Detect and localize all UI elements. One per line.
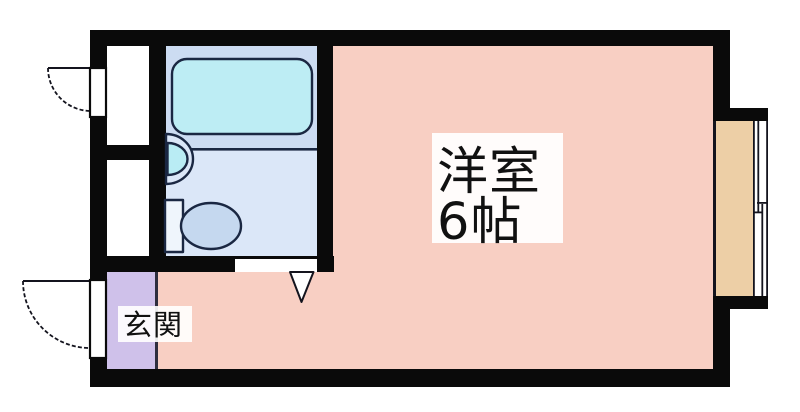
bathtub (172, 59, 312, 134)
entrance-label: 玄関 (123, 308, 183, 342)
floor-plan-drawing: 洋室 6帖 玄関 (0, 0, 800, 412)
floor-plan-canvas: 洋室 6帖 玄関 (0, 0, 800, 412)
window-frame-line-right (766, 121, 768, 296)
wall-alcove-divider (107, 145, 166, 160)
window-sash-tick-lower (753, 212, 763, 214)
wall-right-lower (713, 296, 730, 387)
window-sash-tick-upper (757, 202, 768, 204)
entrance-door-leaf (90, 280, 106, 358)
wall-inner-vertical (149, 30, 166, 256)
bay-window-floor (716, 121, 753, 296)
wall-bathroom-right (317, 30, 333, 272)
wall-bay-top-stub (713, 108, 768, 121)
window-sash-lower (761, 204, 763, 296)
main-room-label-size: 6帖 (437, 193, 522, 252)
left-alcove-lower-floor (107, 160, 149, 256)
toilet-bowl (181, 203, 241, 249)
upper-left-door-swing-arc (48, 68, 91, 111)
wall-bottom (90, 369, 730, 387)
opening-bathroom-door (235, 259, 317, 272)
wall-bay-bottom-stub (713, 296, 768, 309)
upper-left-door-leaf (90, 68, 106, 117)
bay-window-inner-edge-line (713, 121, 716, 296)
entrance-door-swing-arc (23, 281, 90, 348)
window-sash-upper (757, 121, 759, 213)
bay-window-glazing (753, 121, 768, 296)
wall-top (90, 30, 730, 46)
left-alcove-upper-floor (107, 46, 149, 145)
wall-right-upper (713, 30, 730, 121)
window-frame-line-left (753, 121, 755, 296)
